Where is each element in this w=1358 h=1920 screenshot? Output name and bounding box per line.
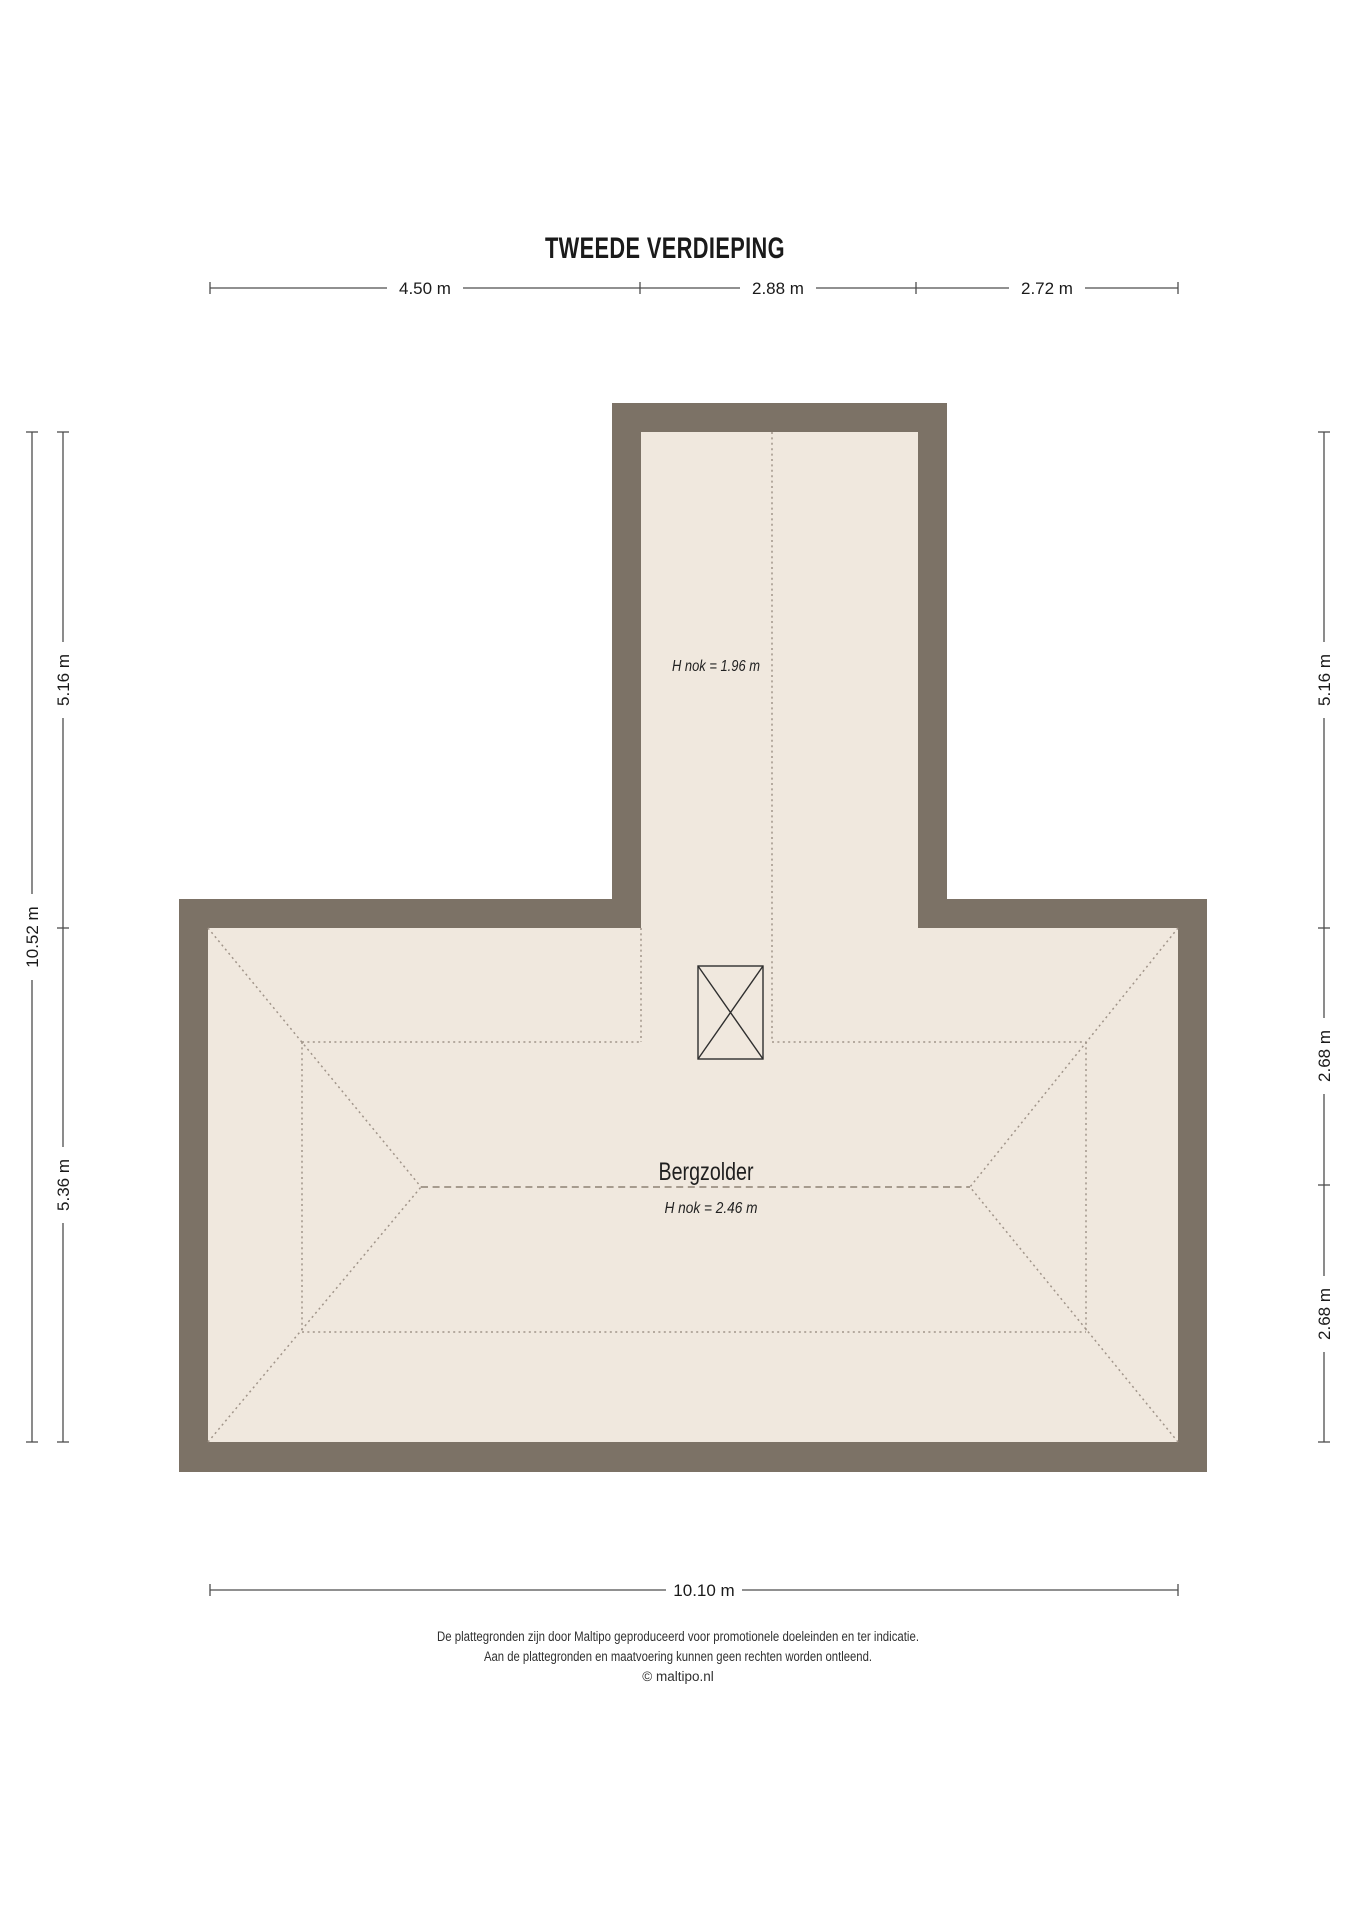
dimension-label-left-total: 10.52 m bbox=[23, 906, 42, 967]
dimension-label-left-1: 5.16 m bbox=[54, 654, 73, 706]
dimension-label-left-2: 5.36 m bbox=[54, 1159, 73, 1211]
room-label: Bergzolder bbox=[659, 1158, 754, 1186]
footer-line-2: Aan de plattegronden en maatvoering kunn… bbox=[484, 1649, 872, 1664]
dimension-label-right-1: 5.16 m bbox=[1315, 654, 1334, 706]
dimension-label-top-3: 2.72 m bbox=[1021, 279, 1073, 298]
dimension-label-bottom: 10.10 m bbox=[673, 1581, 734, 1600]
left-inner-dimension-line: 5.16 m 5.36 m bbox=[54, 432, 73, 1442]
dimension-label-right-3: 2.68 m bbox=[1315, 1288, 1334, 1340]
footer-line-1: De plattegronden zijn door Maltipo gepro… bbox=[437, 1629, 919, 1644]
dimension-label-top-2: 2.88 m bbox=[752, 279, 804, 298]
page-title: TWEEDE VERDIEPING bbox=[545, 232, 785, 265]
floor-area bbox=[208, 432, 1178, 1442]
room-ridge-height-note: H nok = 2.46 m bbox=[665, 1200, 758, 1217]
footer-disclaimer: De plattegronden zijn door Maltipo gepro… bbox=[437, 1629, 919, 1684]
floorplan-page: TWEEDE VERDIEPING 4.50 m 2.88 m 2.72 m 1… bbox=[0, 0, 1358, 1920]
right-dimension-line: 5.16 m 2.68 m 2.68 m bbox=[1315, 432, 1334, 1442]
floorplan-drawing: TWEEDE VERDIEPING 4.50 m 2.88 m 2.72 m 1… bbox=[0, 0, 1358, 1920]
left-outer-dimension-line: 10.52 m bbox=[23, 432, 42, 1442]
bottom-dimension-line: 10.10 m bbox=[210, 1581, 1178, 1600]
top-dimension-line: 4.50 m 2.88 m 2.72 m bbox=[210, 279, 1178, 298]
dimension-label-right-2: 2.68 m bbox=[1315, 1030, 1334, 1082]
dimension-label-top-1: 4.50 m bbox=[399, 279, 451, 298]
footer-copyright: © maltipo.nl bbox=[642, 1669, 713, 1684]
corridor-ridge-height-note: H nok = 1.96 m bbox=[672, 658, 760, 675]
